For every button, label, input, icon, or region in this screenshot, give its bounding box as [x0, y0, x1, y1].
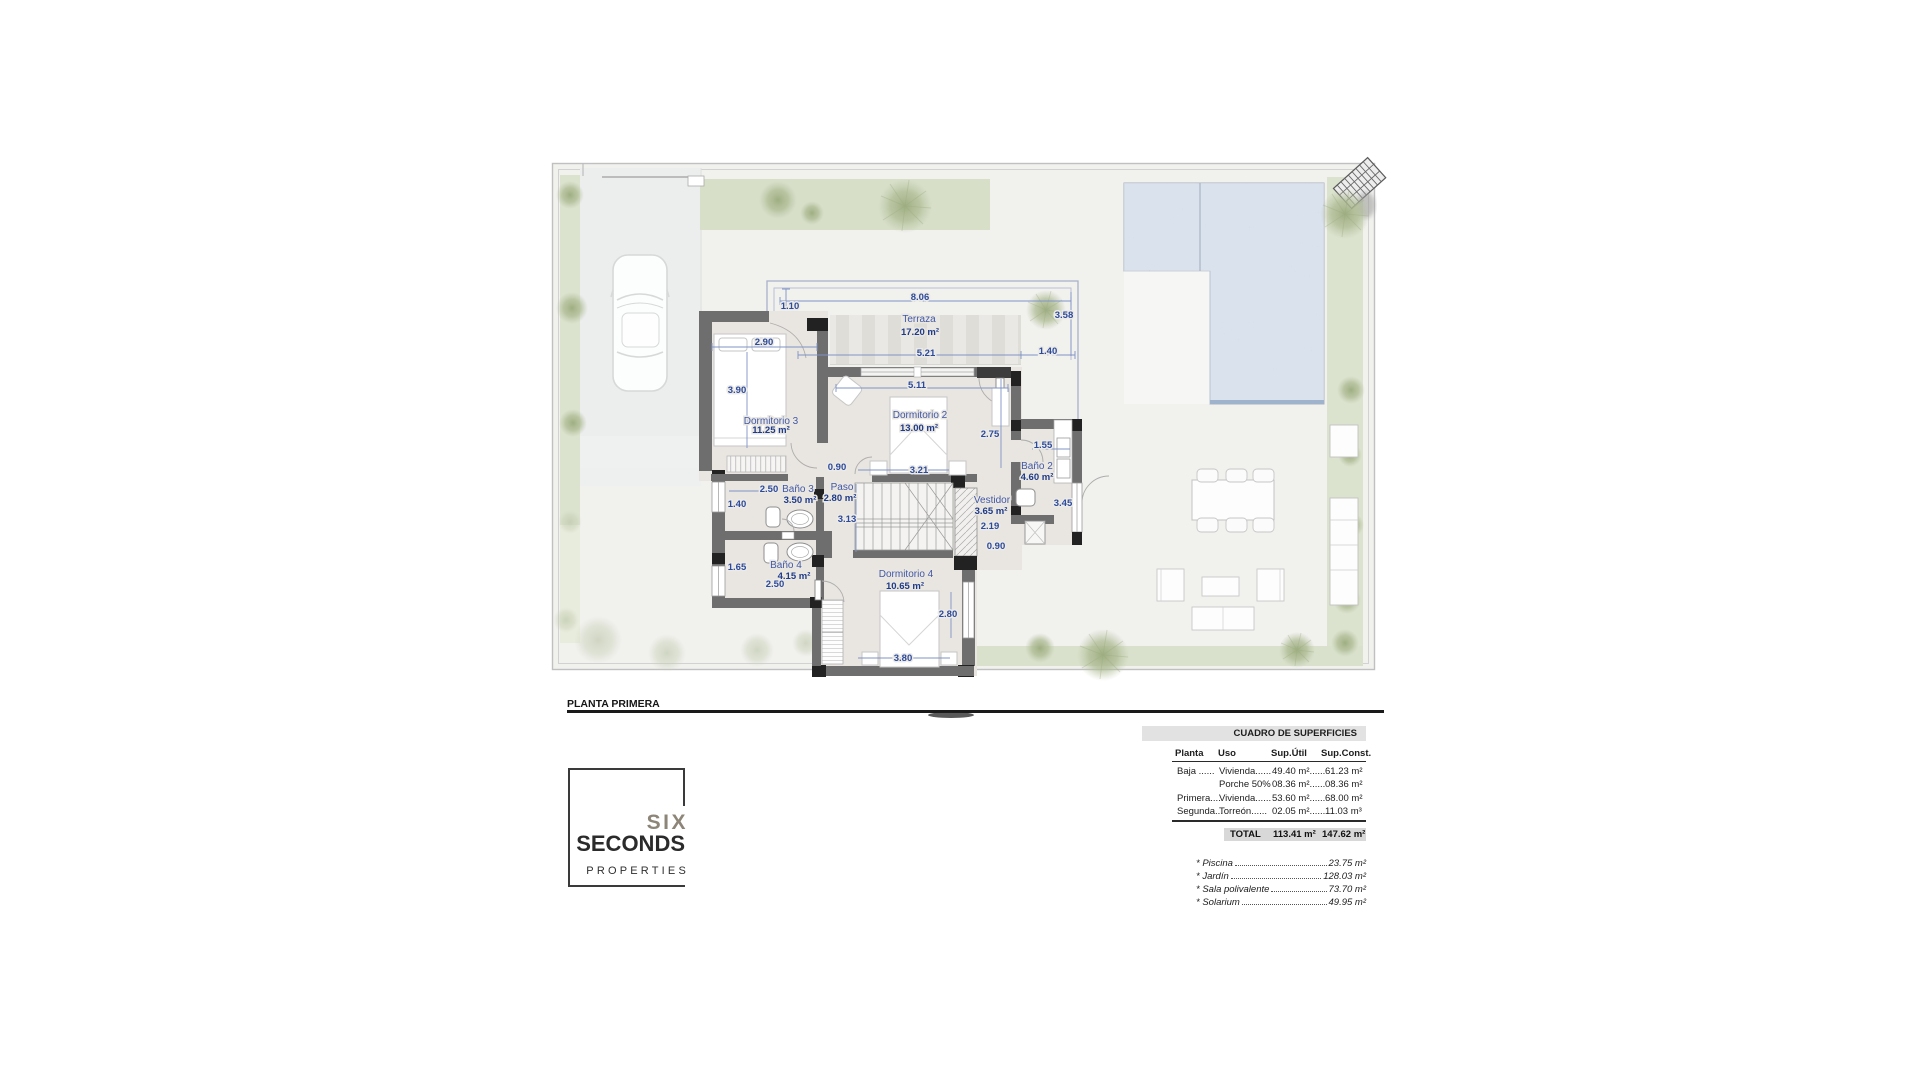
svg-text:17.20 m²: 17.20 m²	[901, 327, 939, 338]
svg-text:4.60 m²: 4.60 m²	[1021, 472, 1054, 483]
svg-text:Dormitorio 2: Dormitorio 2	[893, 410, 948, 421]
svg-text:1.65: 1.65	[728, 562, 747, 573]
svg-text:1.55: 1.55	[1034, 440, 1053, 451]
svg-text:2.50: 2.50	[760, 484, 779, 495]
svg-text:3.80: 3.80	[894, 653, 913, 664]
svg-text:2.90: 2.90	[755, 337, 774, 348]
svg-text:Baño 2: Baño 2	[1021, 461, 1053, 472]
svg-text:Vestidor: Vestidor	[974, 495, 1011, 506]
svg-text:3.50 m²: 3.50 m²	[784, 495, 817, 506]
svg-text:10.65 m²: 10.65 m²	[886, 581, 924, 592]
svg-text:3.90: 3.90	[728, 385, 747, 396]
svg-text:2.19: 2.19	[981, 521, 1000, 532]
svg-text:2.80 m²: 2.80 m²	[824, 493, 857, 504]
svg-text:3.13: 3.13	[838, 514, 857, 525]
svg-text:3.45: 3.45	[1054, 498, 1073, 509]
svg-text:1.10: 1.10	[781, 301, 800, 312]
svg-text:2.50: 2.50	[766, 579, 785, 590]
svg-text:2.80: 2.80	[939, 609, 958, 620]
svg-text:3.65 m²: 3.65 m²	[975, 506, 1008, 517]
svg-text:5.21: 5.21	[917, 348, 936, 359]
svg-text:0.90: 0.90	[828, 462, 847, 473]
svg-text:13.00 m²: 13.00 m²	[900, 423, 938, 434]
svg-text:Baño 4: Baño 4	[770, 560, 802, 571]
svg-text:Paso: Paso	[831, 482, 854, 493]
svg-text:1.40: 1.40	[728, 499, 747, 510]
svg-text:0.90: 0.90	[987, 541, 1006, 552]
svg-text:Terraza: Terraza	[902, 314, 936, 325]
svg-text:3.21: 3.21	[910, 465, 929, 476]
svg-text:8.06: 8.06	[911, 292, 930, 303]
svg-text:Baño 3: Baño 3	[782, 484, 814, 495]
svg-text:Dormitorio 4: Dormitorio 4	[879, 569, 934, 580]
svg-text:3.58: 3.58	[1055, 310, 1074, 321]
svg-text:2.75: 2.75	[981, 429, 1000, 440]
svg-text:11.25 m²: 11.25 m²	[752, 425, 790, 436]
svg-text:1.40: 1.40	[1039, 346, 1058, 357]
svg-text:5.11: 5.11	[908, 380, 927, 391]
